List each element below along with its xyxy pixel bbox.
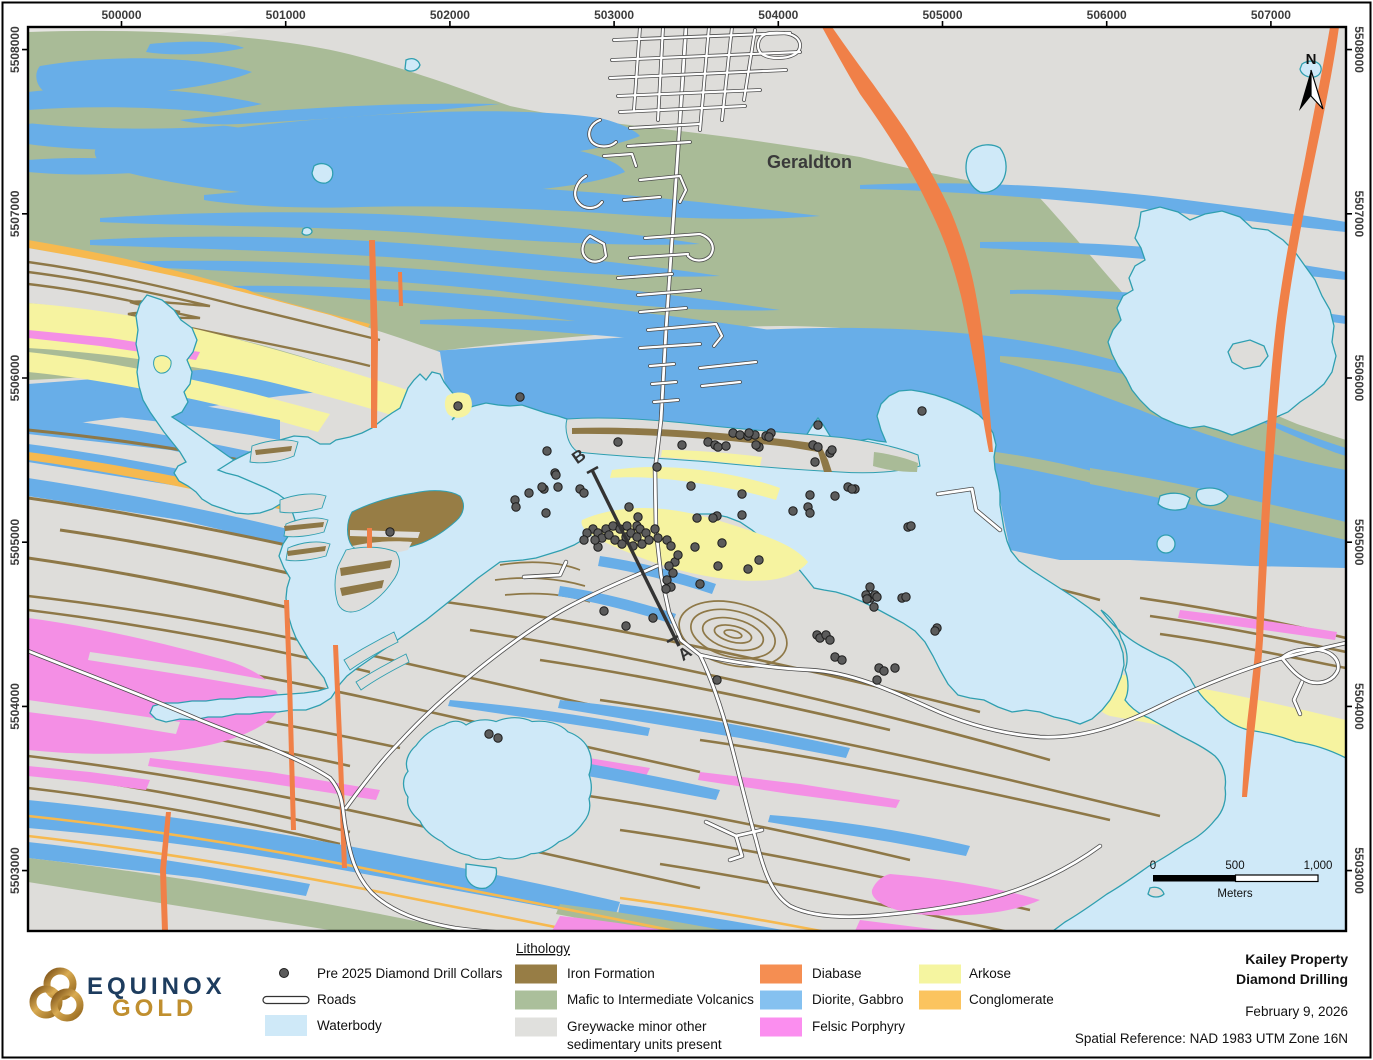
svg-text:0: 0: [1150, 860, 1156, 872]
svg-text:5507000: 5507000: [1352, 190, 1366, 237]
svg-text:N: N: [1306, 51, 1317, 68]
svg-text:Diorite, Gabbro: Diorite, Gabbro: [812, 992, 904, 1007]
svg-text:Greywacke minor other: Greywacke minor other: [567, 1019, 707, 1034]
svg-text:504000: 504000: [758, 8, 798, 22]
svg-text:5504000: 5504000: [1352, 683, 1366, 730]
svg-text:Kailey Property: Kailey Property: [1245, 951, 1348, 967]
svg-text:5508000: 5508000: [1352, 26, 1366, 73]
svg-text:Spatial Reference: NAD 1983 UT: Spatial Reference: NAD 1983 UTM Zone 16N: [1075, 1031, 1348, 1046]
svg-text:Felsic Porphyry: Felsic Porphyry: [812, 1019, 905, 1034]
svg-text:5505000: 5505000: [1352, 519, 1366, 566]
svg-text:Meters: Meters: [1217, 888, 1252, 900]
svg-text:Geraldton: Geraldton: [767, 152, 852, 172]
svg-text:Diabase: Diabase: [812, 966, 862, 981]
svg-text:5508000: 5508000: [8, 26, 22, 73]
svg-text:506000: 506000: [1087, 8, 1127, 22]
svg-text:502000: 502000: [430, 8, 470, 22]
svg-text:Lithology: Lithology: [516, 941, 570, 956]
svg-text:5504000: 5504000: [8, 683, 22, 730]
svg-text:Arkose: Arkose: [969, 966, 1011, 981]
svg-text:Pre 2025 Diamond Drill Collars: Pre 2025 Diamond Drill Collars: [317, 966, 503, 981]
svg-text:501000: 501000: [266, 8, 306, 22]
svg-text:500: 500: [1225, 860, 1244, 872]
svg-text:Mafic to Intermediate Volcanic: Mafic to Intermediate Volcanics: [567, 992, 754, 1007]
svg-text:500000: 500000: [101, 8, 141, 22]
svg-text:Roads: Roads: [317, 992, 356, 1007]
svg-text:Conglomerate: Conglomerate: [969, 992, 1054, 1007]
svg-text:5506000: 5506000: [1352, 355, 1366, 402]
svg-text:Diamond Drilling: Diamond Drilling: [1236, 971, 1348, 987]
svg-text:GOLD: GOLD: [112, 995, 197, 1022]
svg-text:5505000: 5505000: [8, 519, 22, 566]
svg-text:1,000: 1,000: [1304, 860, 1333, 872]
svg-text:sedimentary units present: sedimentary units present: [567, 1037, 722, 1052]
svg-text:5503000: 5503000: [8, 847, 22, 894]
svg-text:503000: 503000: [594, 8, 634, 22]
svg-text:5506000: 5506000: [8, 354, 22, 401]
svg-text:507000: 507000: [1251, 8, 1291, 22]
svg-text:5503000: 5503000: [1352, 847, 1366, 894]
svg-text:February 9, 2026: February 9, 2026: [1245, 1004, 1348, 1019]
svg-text:5507000: 5507000: [8, 190, 22, 237]
svg-text:Waterbody: Waterbody: [317, 1018, 382, 1033]
svg-text:505000: 505000: [922, 8, 962, 22]
svg-text:Iron Formation: Iron Formation: [567, 966, 655, 981]
